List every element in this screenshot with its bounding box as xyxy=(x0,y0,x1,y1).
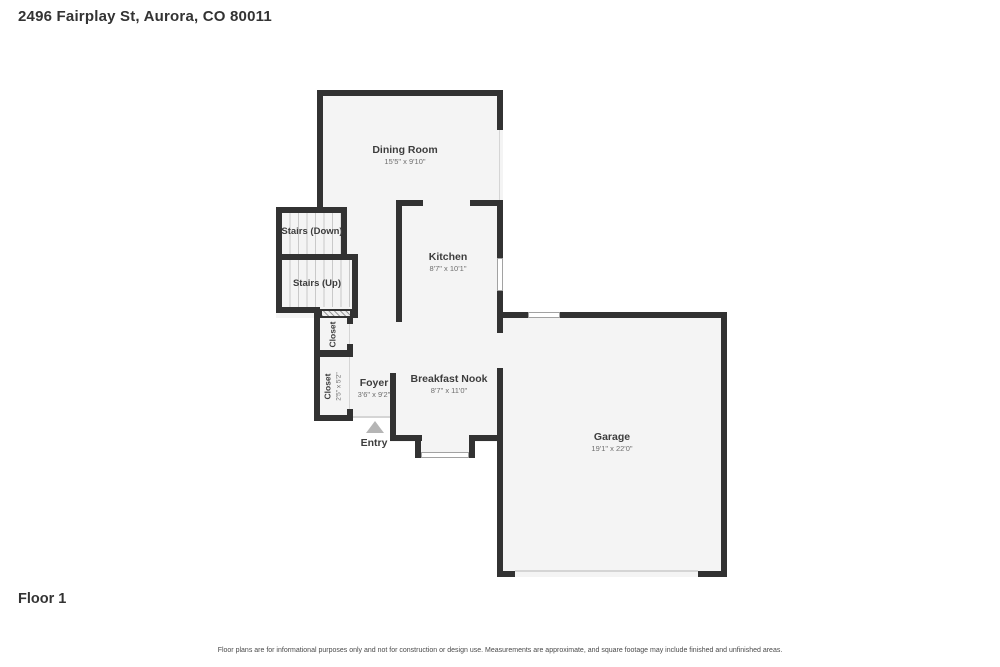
wall-garage-right xyxy=(721,312,727,577)
wall-garage-top-left-seg xyxy=(497,312,528,318)
wall-garage-bottom-right-seg xyxy=(698,571,727,577)
floor-number-label: Floor 1 xyxy=(18,591,66,607)
stairs-up-treads xyxy=(282,260,352,307)
entry-threshold-line xyxy=(353,416,390,418)
room-dims-closet-b: 2'5" x 5'2" xyxy=(334,372,344,400)
wall-kitchen-top-right-seg xyxy=(470,200,503,206)
wall-closet-bottom xyxy=(314,415,353,421)
floor-fill-garage xyxy=(497,312,727,577)
understair-hatch xyxy=(320,309,352,318)
opening-line-dining-right xyxy=(499,130,500,200)
kitchen-window xyxy=(497,258,503,291)
wall-stairs-up-right xyxy=(352,260,358,318)
closet-b-door-line xyxy=(349,357,350,409)
wall-right-kitchen-upper xyxy=(497,200,503,258)
room-name-closet-a: Closet xyxy=(326,322,339,348)
room-label-closet-a: Closet xyxy=(318,318,348,351)
wall-dining-left xyxy=(317,90,323,213)
disclaimer-text: Floor plans are for informational purpos… xyxy=(0,647,1000,654)
entry-direction-icon xyxy=(366,421,384,433)
wall-nook-bottom-right-seg xyxy=(469,435,503,441)
wall-kitchen-top-left-seg xyxy=(396,200,423,206)
wall-right-nook-garage xyxy=(497,368,503,577)
wall-stairs-divider xyxy=(276,254,358,260)
room-label-closet-b: Closet 2'5" x 5'2" xyxy=(317,357,349,415)
bay-window xyxy=(421,452,469,458)
floorplan-canvas: Dining Room 15'5" x 9'10" Kitchen 8'7" x… xyxy=(0,0,1000,667)
wall-dining-top xyxy=(317,90,503,96)
wall-kitchen-left xyxy=(396,200,402,322)
wall-dining-right-upper xyxy=(497,90,503,130)
wall-nook-left xyxy=(390,373,396,435)
room-name-closet-b: Closet xyxy=(321,372,334,400)
wall-stairs-top xyxy=(276,207,347,213)
garage-door-line xyxy=(515,570,698,572)
wall-stairs-down-right xyxy=(341,213,347,254)
wall-garage-bottom-left-seg xyxy=(497,571,515,577)
closet-a-door-line xyxy=(349,324,350,344)
floorplan-page: { "header": { "address": "2496 Fairplay … xyxy=(0,0,1000,667)
stairs-down-treads xyxy=(282,213,341,254)
room-label-closet-b-text: Closet 2'5" x 5'2" xyxy=(321,372,344,400)
wall-garage-top-main xyxy=(560,312,727,318)
garage-window xyxy=(528,312,560,318)
wall-stairs-left xyxy=(276,207,282,313)
